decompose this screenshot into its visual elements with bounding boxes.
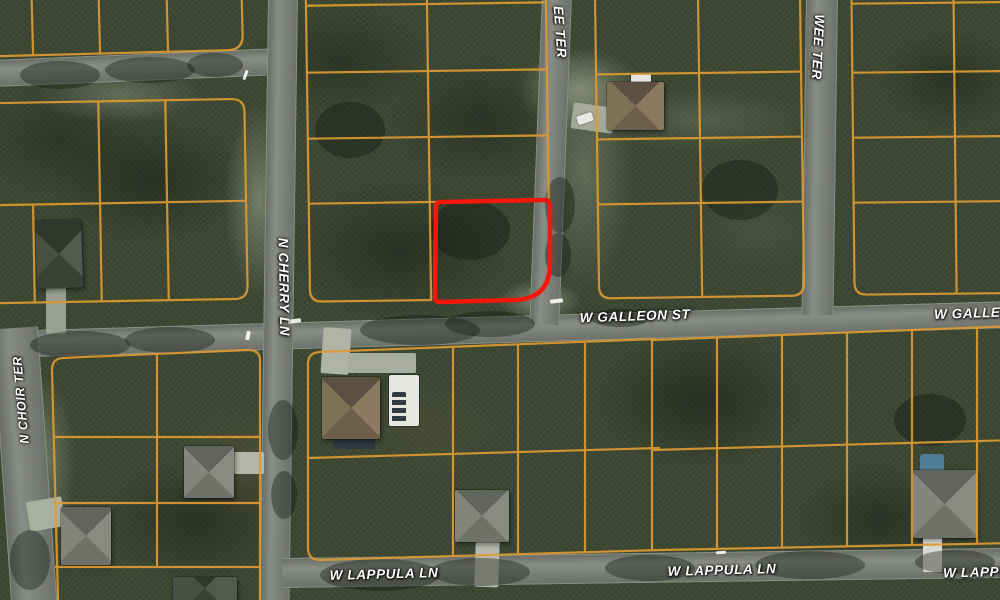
street-label-cherry-ln: N CHERRY LN bbox=[276, 238, 293, 337]
map-canvas[interactable]: N CHERRY LN N CHOIR TER EE TER WEE TER W… bbox=[0, 0, 1000, 600]
street-label-galleon-partial: W GALLEON bbox=[934, 304, 1000, 322]
street-label-lappula-east: W LAPPULA LN bbox=[667, 561, 776, 579]
street-label-lappula-partial: W LAPPULA bbox=[943, 563, 1000, 580]
street-label-lappula-west: W LAPPULA LN bbox=[329, 565, 438, 583]
map-overlay bbox=[0, 0, 1000, 600]
